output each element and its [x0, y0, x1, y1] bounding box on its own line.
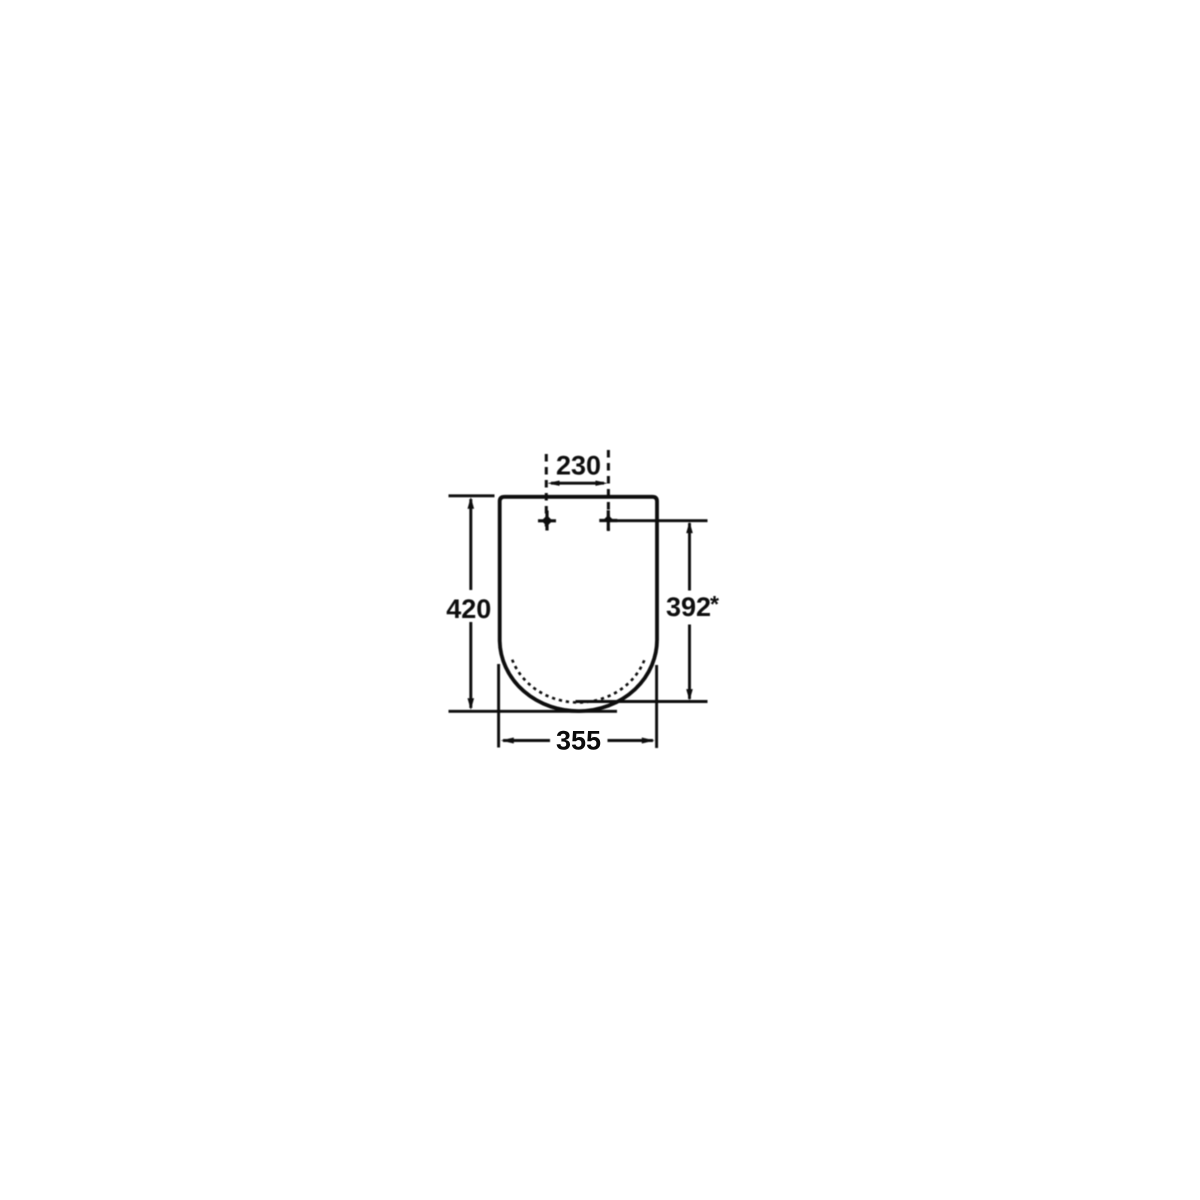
svg-text:420: 420 — [446, 594, 491, 624]
svg-text:230: 230 — [556, 451, 601, 481]
svg-text:392: 392 — [666, 592, 711, 622]
svg-text:*: * — [710, 591, 719, 617]
svg-text:355: 355 — [556, 726, 601, 756]
